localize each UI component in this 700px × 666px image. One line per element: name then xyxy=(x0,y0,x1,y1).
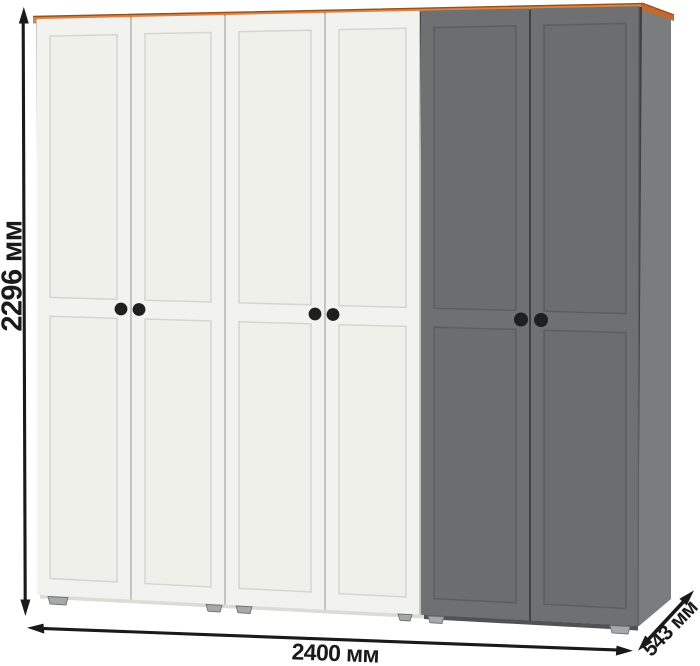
wardrobe-foot xyxy=(48,597,68,606)
product-dimension-diagram: 2296 мм 2400 мм 543 мм xyxy=(0,0,700,666)
door-upper-panel xyxy=(434,26,516,311)
width-dimension: 2400 мм xyxy=(27,624,633,666)
door-2 xyxy=(132,15,224,605)
wardrobe xyxy=(33,4,674,635)
arrow-right-icon xyxy=(616,646,633,656)
door-6 xyxy=(531,6,639,626)
wardrobe-foot xyxy=(236,606,252,614)
door-knob xyxy=(133,303,146,316)
door-upper-panel xyxy=(50,35,117,300)
door-lower-panel xyxy=(434,327,516,603)
arrow-up-icon xyxy=(19,7,29,24)
door-5 xyxy=(421,9,529,621)
door-knob xyxy=(514,313,528,327)
door-upper-panel xyxy=(239,30,311,305)
wardrobe-foot xyxy=(610,626,630,635)
door-lower-panel xyxy=(239,322,311,592)
door-knob xyxy=(534,313,548,327)
door-knob xyxy=(309,308,322,321)
arrow-left-icon xyxy=(27,624,44,634)
door-lower-panel xyxy=(544,330,626,608)
height-dimension: 2296 мм xyxy=(0,7,30,616)
door-lower-panel xyxy=(145,319,211,587)
door-upper-panel xyxy=(544,23,626,313)
front-side-corner-edge xyxy=(638,7,639,627)
wardrobe-diagram-canvas: 2296 мм 2400 мм 543 мм xyxy=(0,0,700,666)
width-dimension-label: 2400 мм xyxy=(291,638,379,666)
wardrobe-foot xyxy=(206,605,222,613)
door-lower-panel xyxy=(50,316,117,582)
door-knob xyxy=(327,308,340,321)
arrow-down-icon xyxy=(20,600,30,617)
wardrobe-foot xyxy=(398,614,412,621)
wardrobe-side-panel xyxy=(639,7,671,627)
door-knob xyxy=(115,303,128,316)
height-dimension-label: 2296 мм xyxy=(0,220,29,331)
door-4 xyxy=(326,11,419,615)
door-lower-panel xyxy=(339,325,406,597)
door-upper-panel xyxy=(145,32,211,302)
wardrobe-foot xyxy=(428,616,444,624)
door-upper-panel xyxy=(339,28,406,307)
